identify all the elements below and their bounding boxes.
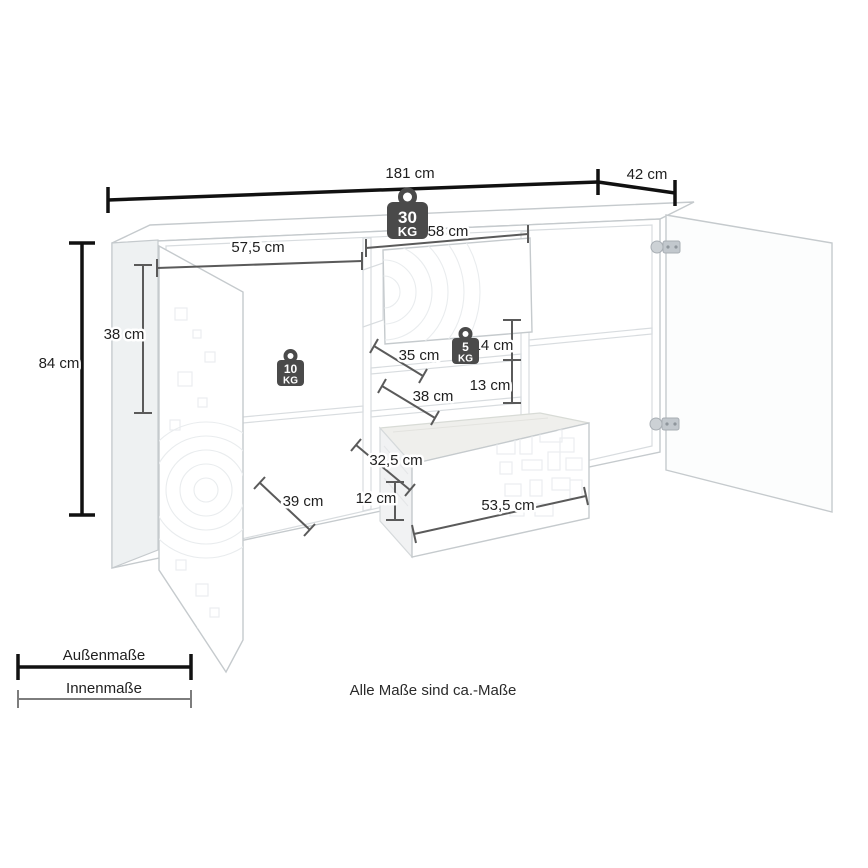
dim-drawer-depth-label: 32,5 cm (369, 452, 422, 469)
cabinet-left-side (112, 240, 158, 568)
footnote-text: Alle Maße sind ca.-Maße (350, 682, 517, 699)
dim-middle-lower-shelf-depth-label: 38 cm (413, 388, 454, 405)
sideboard-drawing: 38 cm 57,5 cm 58 cm 35 cm 14 cm 13 cm 38… (0, 0, 868, 868)
legend-inner-label: Innenmaße (66, 680, 142, 697)
weight-left-value: 10 (284, 362, 298, 376)
weight-middle-unit: KG (458, 354, 473, 365)
dim-drawer-width-label: 53,5 cm (481, 497, 534, 514)
drawer-open (380, 413, 589, 557)
dim-total-height: 84 cm (39, 243, 95, 515)
weight-badge-top-icon: 30 KG (387, 190, 428, 239)
weight-left-unit: KG (283, 376, 298, 387)
weight-top-unit: KG (398, 224, 418, 239)
dim-middle-gap-lower-label: 13 cm (470, 377, 511, 394)
hinge-top-icon (651, 241, 680, 253)
right-door-open (650, 215, 832, 512)
dim-left-inner-width-label: 57,5 cm (231, 239, 284, 256)
hinge-bottom-icon (650, 418, 679, 430)
weight-middle-value: 5 (462, 340, 469, 354)
legend: Außenmaße Innenmaße (18, 647, 191, 708)
dim-total-width: 181 cm (108, 165, 598, 213)
dim-total-depth: 42 cm (598, 166, 675, 206)
legend-inner: Innenmaße (18, 680, 191, 708)
right-door-panel (666, 215, 832, 512)
flap-panel (383, 238, 532, 344)
dim-total-depth-label: 42 cm (627, 166, 668, 183)
dim-total-width-label: 181 cm (385, 165, 434, 182)
dim-middle-inner-width-label: 58 cm (428, 223, 469, 240)
legend-outer-label: Außenmaße (63, 647, 146, 664)
legend-outer: Außenmaße (18, 647, 191, 680)
dim-total-height-label: 84 cm (39, 355, 80, 372)
product-dimension-diagram: 38 cm 57,5 cm 58 cm 35 cm 14 cm 13 cm 38… (0, 0, 868, 868)
dim-left-inner-height-label: 38 cm (104, 326, 145, 343)
dim-left-inner-depth-label: 39 cm (283, 493, 324, 510)
dim-drawer-height-label: 12 cm (356, 490, 397, 507)
dim-middle-shelf-depth-label: 35 cm (399, 347, 440, 364)
